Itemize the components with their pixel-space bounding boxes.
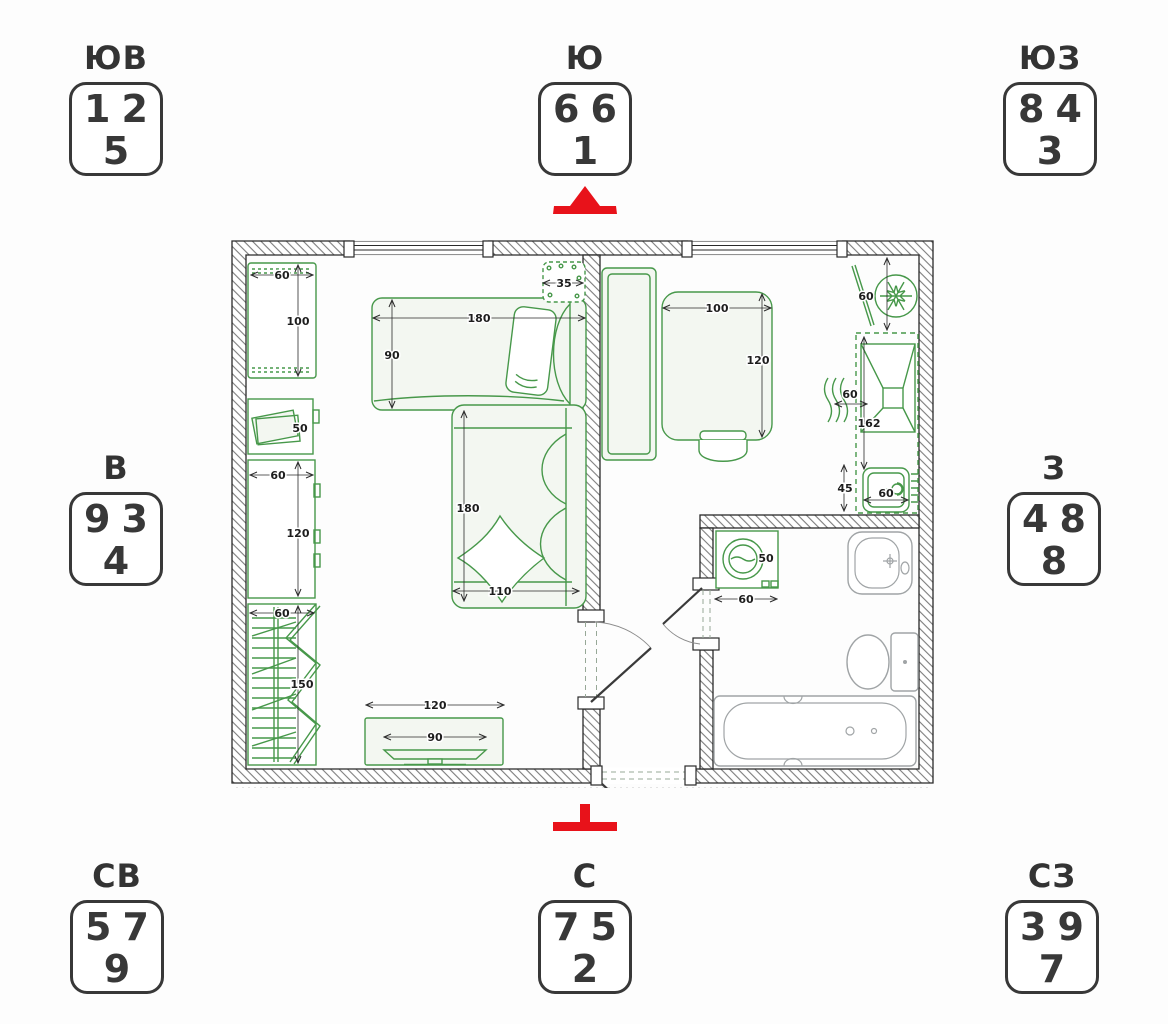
dim-sink-width: 60 xyxy=(878,487,894,500)
compass-se-digit-1: 1 xyxy=(84,90,110,128)
compass-w-label: З xyxy=(1006,452,1102,484)
dim-counter: 162 xyxy=(858,417,881,430)
fridge: 60 xyxy=(852,259,917,329)
compass-n-box: 7 5 2 xyxy=(538,900,632,994)
dim-stove: 60 xyxy=(842,388,858,401)
side-table: 50 xyxy=(248,399,319,454)
floor-plan-svg: 60 100 50 60 120 xyxy=(228,238,938,788)
screenshot-root: ЮВ 1 2 5 Ю 6 6 1 ЮЗ 8 4 3 В 9 3 4 З xyxy=(0,0,1168,1024)
compass-e-box: 9 3 4 xyxy=(69,492,163,586)
compass-nw-digit-3: 7 xyxy=(1039,950,1065,988)
compass-nw-box: 3 9 7 xyxy=(1005,900,1099,994)
bathroom-door xyxy=(663,578,719,650)
compass-s: Ю 6 6 1 xyxy=(537,42,633,176)
compass-se-label: ЮВ xyxy=(68,42,164,74)
toilet xyxy=(847,633,918,691)
compass-nw: СЗ 3 9 7 xyxy=(1004,860,1100,994)
dim-washer: 50 xyxy=(758,552,774,565)
dim-sofa-width: 110 xyxy=(489,585,512,598)
cabinet: 60 120 xyxy=(248,460,320,598)
compass-n-digit-2: 5 xyxy=(591,908,617,946)
dim-table-width: 120 xyxy=(747,354,770,367)
dim-washer-gap: 60 xyxy=(738,593,754,606)
bathroom-sink xyxy=(848,532,912,594)
kitchen-sink: 45 60 xyxy=(837,466,918,512)
north-tee-icon xyxy=(553,804,617,838)
compass-nw-digit-1: 3 xyxy=(1020,908,1046,946)
dim-sofa-length: 180 xyxy=(457,502,480,515)
dim-shelf: 35 xyxy=(556,277,571,290)
dim-tv-stand: 120 xyxy=(424,699,447,712)
bathtub xyxy=(714,696,916,766)
compass-se-digit-2: 2 xyxy=(122,90,148,128)
compass-se-digit-3: 5 xyxy=(103,132,129,170)
window-living xyxy=(344,240,493,257)
compass-nw-label: СЗ xyxy=(1004,860,1100,892)
compass-w-digit-2: 8 xyxy=(1060,500,1086,538)
compass-s-label: Ю xyxy=(537,42,633,74)
dim-bed-length: 180 xyxy=(468,312,491,325)
dim-desk-length: 100 xyxy=(287,315,310,328)
entrance-door xyxy=(591,766,696,788)
dim-tv: 90 xyxy=(427,731,443,744)
dim-table-length: 100 xyxy=(706,302,729,315)
compass-n-label: С xyxy=(537,860,633,892)
wall-shelf: 35 xyxy=(543,262,585,302)
dim-sink-depth: 45 xyxy=(837,482,852,495)
compass-e: В 9 3 4 xyxy=(68,452,164,586)
compass-e-digit-1: 9 xyxy=(84,500,110,538)
compass-s-box: 6 6 1 xyxy=(538,82,632,176)
dim-fridge: 60 xyxy=(858,290,874,303)
dim-cabinet-width: 60 xyxy=(270,469,286,482)
dim-side-table: 50 xyxy=(292,422,308,435)
compass-w-digit-3: 8 xyxy=(1041,542,1067,580)
compass-s-digit-1: 6 xyxy=(553,90,579,128)
floor-plan: 60 100 50 60 120 xyxy=(228,238,938,792)
compass-s-digit-3: 1 xyxy=(572,132,598,170)
compass-ne-box: 5 7 9 xyxy=(70,900,164,994)
compass-ne-digit-2: 7 xyxy=(123,908,149,946)
dim-cabinet-length: 120 xyxy=(287,527,310,540)
window-kitchen xyxy=(682,240,847,257)
compass-n-digit-1: 7 xyxy=(553,908,579,946)
compass-sw-digit-2: 4 xyxy=(1056,90,1082,128)
washing-machine: 50 60 xyxy=(716,531,778,606)
sofa: 180 110 xyxy=(452,405,586,608)
living-room-door xyxy=(578,610,651,709)
compass-sw-box: 8 4 3 xyxy=(1003,82,1097,176)
compass-w: З 4 8 8 xyxy=(1006,452,1102,586)
compass-sw: ЮЗ 8 4 3 xyxy=(1002,42,1098,176)
compass-se: ЮВ 1 2 5 xyxy=(68,42,164,176)
dim-wardrobe-width: 60 xyxy=(274,607,290,620)
desk: 60 100 xyxy=(248,263,316,378)
tv-stand: 120 90 xyxy=(365,699,503,765)
compass-ne-label: СВ xyxy=(69,860,165,892)
compass-ne: СВ 5 7 9 xyxy=(69,860,165,994)
compass-nw-digit-2: 9 xyxy=(1058,908,1084,946)
compass-e-digit-3: 4 xyxy=(103,542,129,580)
bed: 180 90 xyxy=(372,298,586,410)
compass-se-box: 1 2 5 xyxy=(69,82,163,176)
kitchen-counter-left xyxy=(602,268,656,460)
wardrobe: 60 150 xyxy=(248,604,320,765)
dim-desk-width: 60 xyxy=(274,269,290,282)
compass-s-digit-2: 6 xyxy=(591,90,617,128)
compass-e-digit-2: 3 xyxy=(122,500,148,538)
compass-sw-digit-3: 3 xyxy=(1037,132,1063,170)
compass-sw-label: ЮЗ xyxy=(1002,42,1098,74)
kitchen-table: 100 120 xyxy=(662,292,772,461)
dim-wardrobe-length: 150 xyxy=(291,678,314,691)
compass-ne-digit-3: 9 xyxy=(104,950,130,988)
south-arrow-icon xyxy=(553,184,617,220)
compass-e-label: В xyxy=(68,452,164,484)
compass-w-box: 4 8 8 xyxy=(1007,492,1101,586)
compass-sw-digit-1: 8 xyxy=(1018,90,1044,128)
compass-n-digit-3: 2 xyxy=(572,950,598,988)
compass-w-digit-1: 4 xyxy=(1022,500,1048,538)
compass-n: С 7 5 2 xyxy=(537,860,633,994)
compass-ne-digit-1: 5 xyxy=(85,908,111,946)
dim-bed-width: 90 xyxy=(384,349,400,362)
